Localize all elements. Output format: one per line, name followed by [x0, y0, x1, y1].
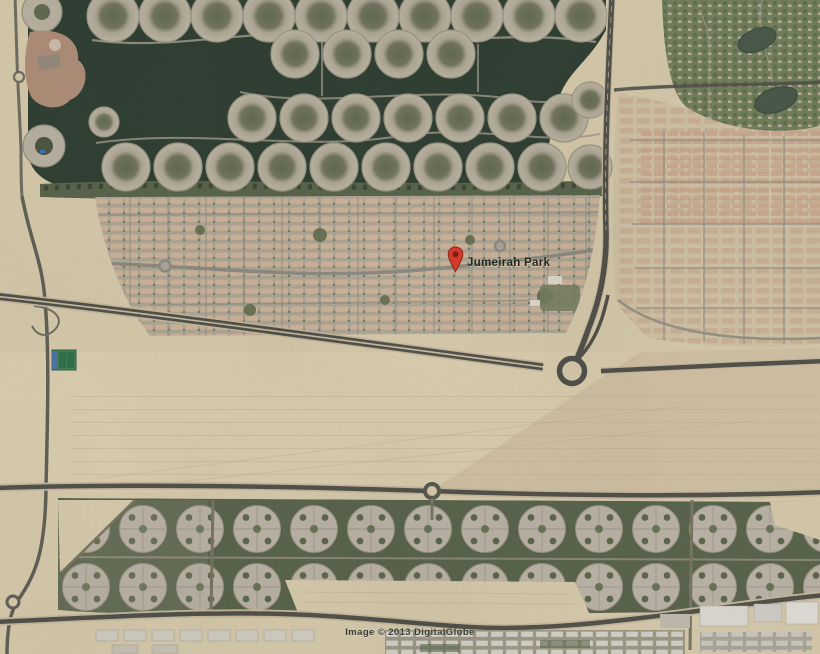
map-pin[interactable]: [447, 246, 464, 273]
map-pin-label: Jumeirah Park: [467, 257, 550, 269]
map-pin-icon: [447, 246, 464, 273]
map-attribution: Image © 2013 DigitalGlobe: [345, 627, 474, 638]
image-grain: [0, 0, 820, 654]
satellite-map[interactable]: Jumeirah Park Image © 2013 DigitalGlobe: [0, 0, 820, 654]
satellite-imagery: [0, 0, 820, 654]
